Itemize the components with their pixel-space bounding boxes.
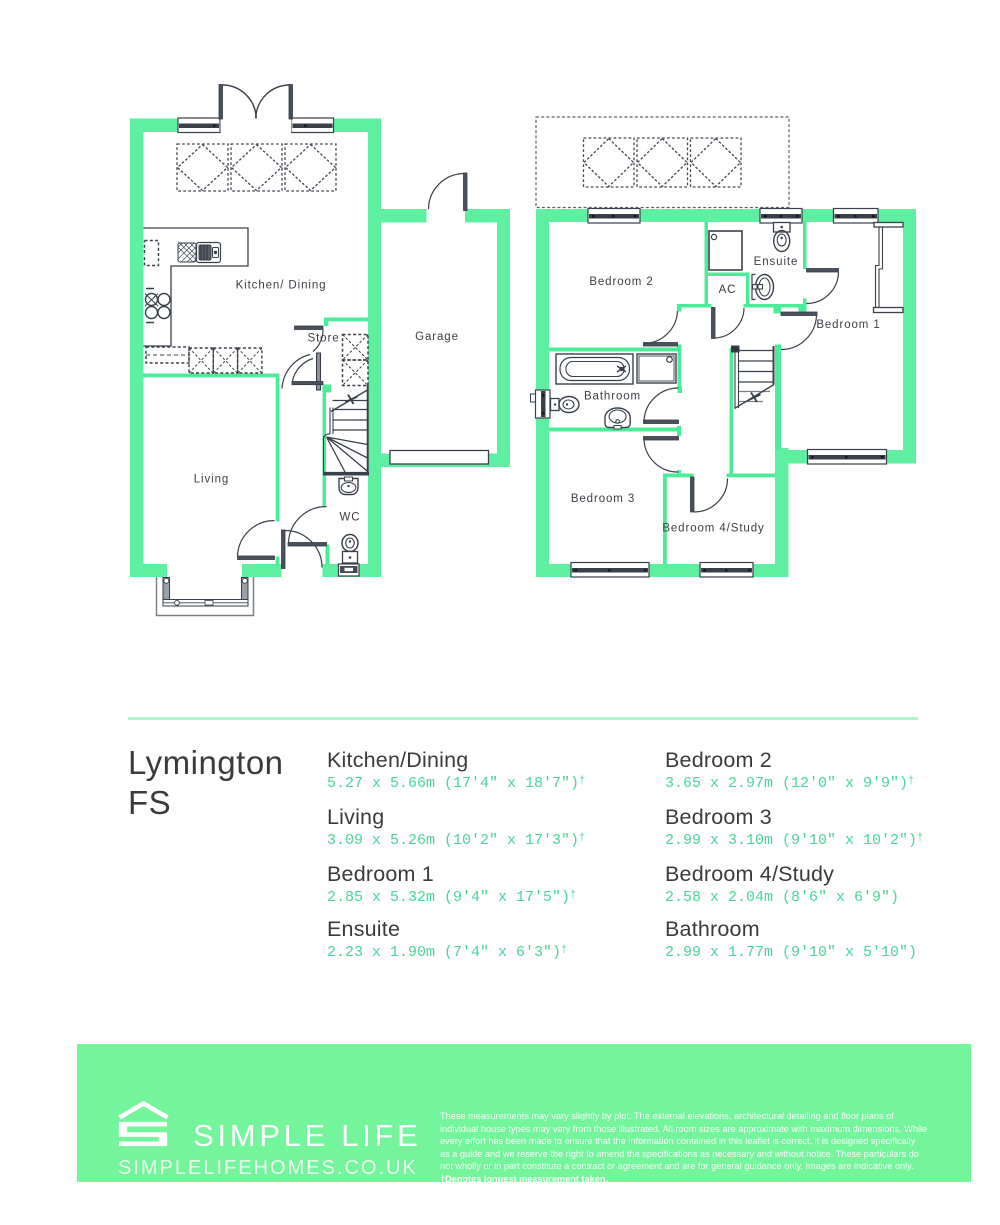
svg-text:Ensuite: Ensuite	[754, 256, 799, 268]
svg-text:Garage: Garage	[415, 331, 459, 343]
svg-text:Bedroom 3: Bedroom 3	[571, 493, 635, 505]
svg-text:WC: WC	[340, 512, 361, 524]
svg-text:Living: Living	[194, 474, 229, 486]
svg-text:Bedroom 4/Study: Bedroom 4/Study	[662, 523, 764, 535]
svg-text:Bedroom 2: Bedroom 2	[589, 276, 653, 288]
svg-text:Kitchen/ Dining: Kitchen/ Dining	[236, 280, 327, 292]
svg-text:Bathroom: Bathroom	[584, 391, 641, 403]
svg-text:Store: Store	[308, 333, 340, 345]
svg-text:AC: AC	[719, 284, 737, 296]
svg-text:Bedroom 1: Bedroom 1	[816, 319, 880, 331]
